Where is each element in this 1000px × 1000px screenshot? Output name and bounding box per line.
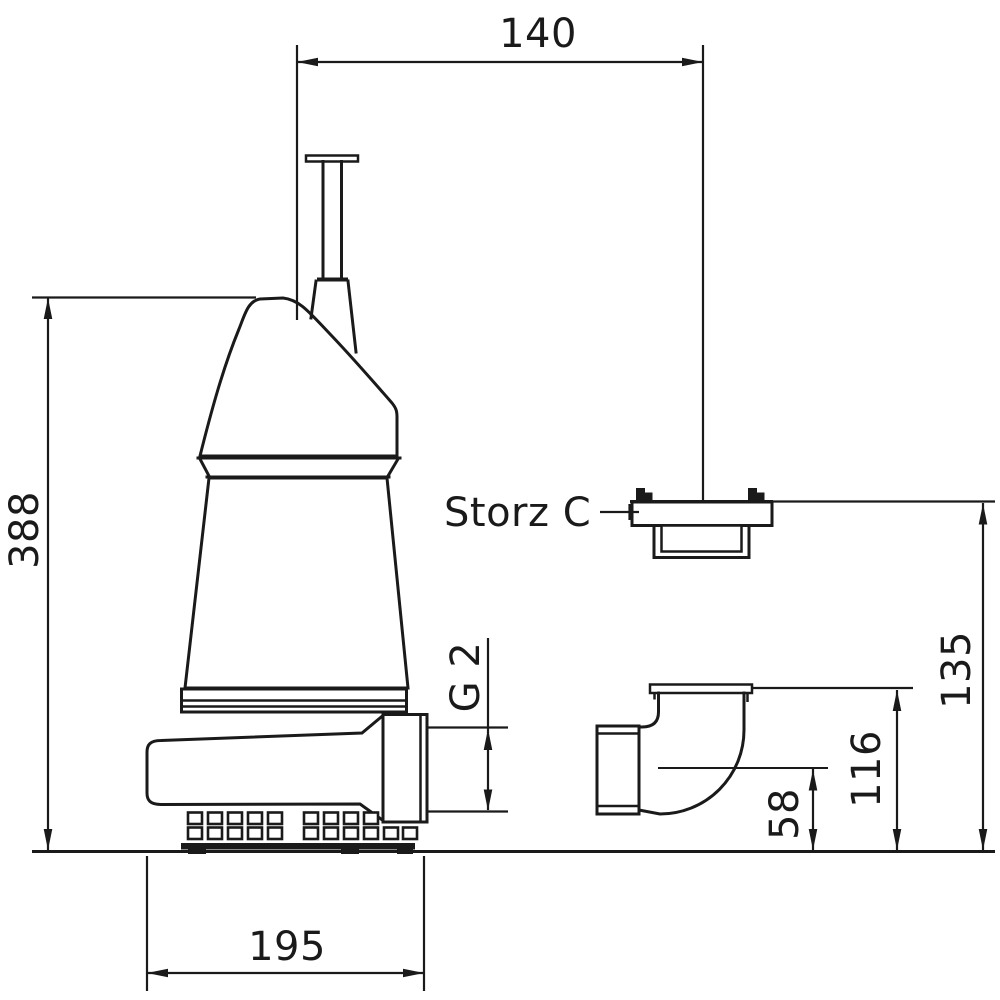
coupling-lug-left [636, 488, 653, 501]
dim-195: 195 [147, 856, 424, 991]
pump-side-view [147, 156, 427, 855]
label-storz-c: Storz C [444, 490, 639, 536]
dim-195-label: 195 [248, 924, 326, 970]
strainer-slot [188, 813, 202, 825]
dim-58: 58 [762, 769, 817, 850]
dim-135-label: 135 [934, 631, 980, 709]
strainer-slot [324, 828, 338, 840]
motor-housing [200, 298, 397, 456]
strainer-slot [228, 813, 242, 825]
clamp-band [198, 458, 400, 477]
storz-c-text: Storz C [444, 490, 591, 536]
strainer-slot [364, 828, 378, 840]
strainer-slot [364, 813, 378, 825]
dim-116-label: 116 [844, 730, 890, 808]
strainer-slot [208, 828, 222, 840]
storz-coupling [630, 488, 773, 558]
strainer-slot [248, 828, 262, 840]
strainer-slot [188, 828, 202, 840]
dim-g2-label: G 2 [443, 642, 489, 713]
strainer-slot [304, 828, 318, 840]
bottom-flange [182, 689, 407, 712]
dim-140-label: 140 [499, 11, 577, 57]
pump-dimensional-drawing: 140 388 195 G 2 Storz C 135 [0, 0, 1000, 1000]
strainer-slot [208, 813, 222, 825]
strainer-slot [403, 828, 417, 840]
strainer-slot [344, 813, 358, 825]
dim-58-label: 58 [762, 788, 808, 840]
dim-388-label: 388 [2, 491, 48, 569]
dim-g2: G 2 [428, 638, 508, 812]
strainer-slot [344, 828, 358, 840]
strainer-slot [268, 813, 282, 825]
strainer-slot [304, 813, 318, 825]
strainer-slot [248, 813, 262, 825]
strainer-slot [324, 813, 338, 825]
pump-casing [185, 478, 408, 688]
discharge-port [383, 715, 427, 823]
strainer-slot [268, 828, 282, 840]
strainer-slot [384, 828, 398, 840]
technical-drawing-page: 140 388 195 G 2 Storz C 135 [0, 0, 1000, 1000]
discharge-body [147, 716, 383, 821]
coupling-lug-right [748, 488, 765, 501]
strainer-slot [228, 828, 242, 840]
